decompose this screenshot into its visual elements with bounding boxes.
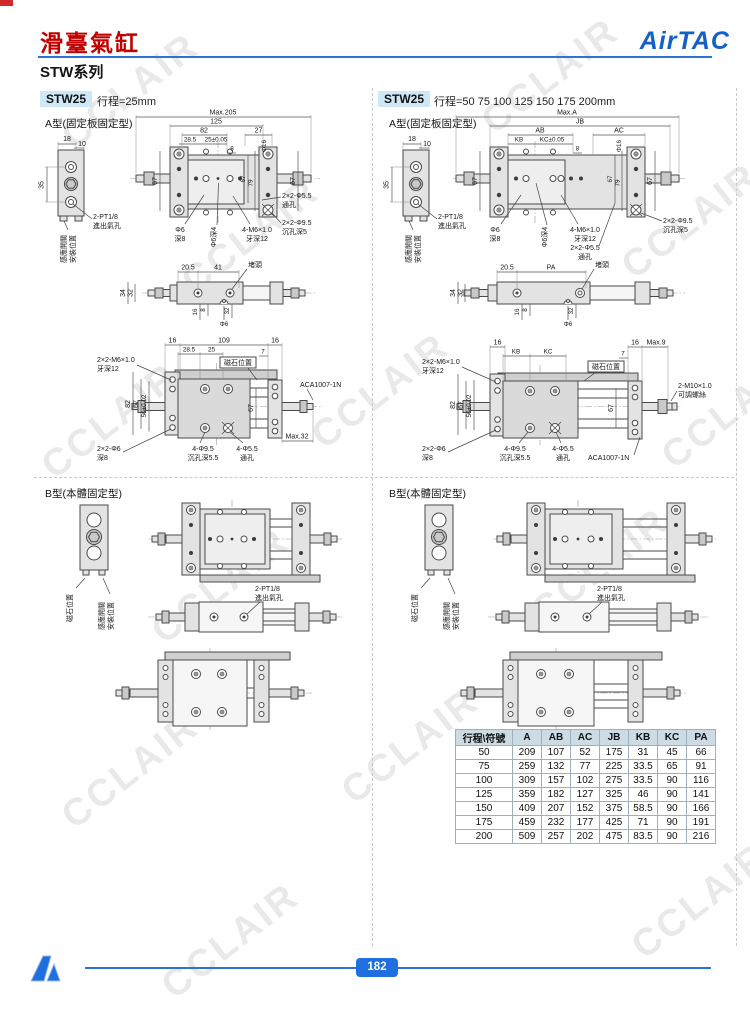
dim: 8 (230, 146, 234, 153)
dim: Φ16 (616, 139, 623, 152)
drawing-left-a-front-view: 20.5 41 堵頭 34 32 16 8 Φ6 32 (120, 256, 345, 340)
dim: Φ16 (261, 139, 268, 152)
drawing-right-a-front-view: 20.5 PA 堵頭 34 32 16 8 Φ6 32 (450, 256, 730, 340)
sensor-label: 安裝位置 (68, 235, 77, 263)
table-cell: 177 (571, 816, 600, 830)
dim: 50±0.02 (141, 394, 148, 417)
dim: 32 (568, 307, 575, 315)
feature-label: 4-Φ5.5 (552, 446, 574, 453)
port-label: 2-PT1/8 (438, 214, 463, 221)
feature-label: 2×2-Φ6 (422, 446, 446, 453)
dim: 25±0.05 (205, 137, 228, 144)
top-view: Max.205 125 82 27 28.5 25±0.05 8 Φ16 67 … (130, 110, 320, 248)
feature-label: 沉孔深5.5 (500, 453, 531, 462)
dim: AC (614, 128, 624, 135)
top-view (148, 500, 342, 582)
column-header: 行程\符號 (456, 730, 513, 746)
table-cell: 90 (658, 802, 687, 816)
table-cell: 207 (542, 802, 571, 816)
feature-label: 2×2-Φ5.5 (570, 245, 600, 252)
table-cell: 90 (658, 830, 687, 844)
dim: 67 (458, 401, 465, 409)
dim: 67 (133, 400, 140, 408)
dim: 82 (125, 400, 132, 408)
table-cell: 141 (687, 788, 716, 802)
dim: 16 (192, 308, 199, 316)
table-cell: 33.5 (629, 774, 658, 788)
feature-label: 堵頭 (248, 260, 262, 269)
feature-label: 沉孔深5 (282, 227, 307, 236)
dim: 67 (240, 175, 247, 183)
table-header-row: 行程\符號AABACJBKBKCPA (456, 730, 716, 746)
table-cell: 91 (687, 760, 716, 774)
table-cell: 359 (513, 788, 542, 802)
sensor-label: 安裝位置 (106, 602, 115, 630)
table-cell: 259 (513, 760, 542, 774)
front-view: 2-PT1/8 進出氣孔 (488, 586, 710, 632)
feature-label: 2×2-Φ9.5 (282, 220, 312, 227)
header-rule (38, 56, 712, 58)
dim: AB (535, 128, 545, 135)
sensor-label: 感應開關 (442, 602, 451, 630)
table-row: 10030915710227533.590116 (456, 774, 716, 788)
feature-label: 沉孔深5 (663, 225, 688, 234)
port-label: 2-PT1/8 (597, 586, 622, 593)
watermark: CCLAIR (154, 875, 308, 1008)
drawing-left-b: 磁石位置 感應開關 安裝位置 (30, 492, 370, 740)
page-corner-mark (0, 0, 13, 6)
feature-label: 可調螺絲 (678, 390, 706, 399)
dim: 8 (522, 308, 529, 312)
table-cell: 225 (600, 760, 629, 774)
dim: 32 (224, 307, 231, 315)
dim: PA (547, 265, 556, 272)
dim: Max.9 (646, 340, 665, 347)
table-cell: 50 (456, 746, 513, 760)
dim: 35 (384, 181, 391, 189)
table-cell: 209 (513, 746, 542, 760)
dim: 109 (218, 338, 230, 345)
feature-label: ACA1007-1N (300, 382, 341, 389)
table-cell: 459 (513, 816, 542, 830)
feature-label: 通孔 (240, 453, 254, 462)
table-cell: 107 (542, 746, 571, 760)
dim: 16 (494, 340, 502, 347)
column-header: AB (542, 730, 571, 746)
sensor-label: 感應開關 (404, 235, 413, 263)
dim: 41 (214, 265, 222, 272)
side-view: 磁石位置 感應開關 安裝位置 (410, 505, 460, 630)
dim: 20.5 (500, 265, 514, 272)
feature-label: 深8 (490, 234, 501, 243)
drawing-left-a-bottom-view: 16 109 16 28.5 25 7 磁石位置 2×2-M6×1.0 牙深12… (95, 331, 365, 473)
table-cell: 216 (687, 830, 716, 844)
feature-label: 4-Φ5.5 (236, 446, 258, 453)
dim: Φ6 (220, 321, 229, 328)
magnet-label: 磁石位置 (224, 358, 252, 367)
table-cell: 166 (687, 802, 716, 816)
dim: 32 (458, 289, 465, 297)
feature-label: 深8 (422, 453, 433, 462)
feature-label: 深8 (175, 234, 186, 243)
dim: 34 (120, 289, 127, 297)
dim: 67 (290, 177, 297, 185)
port-label: 進出氣孔 (93, 221, 121, 230)
table-cell: 58.5 (629, 802, 658, 816)
dim: 32 (128, 289, 135, 297)
table-cell: 100 (456, 774, 513, 788)
port-label: 進出氣孔 (597, 593, 625, 602)
column-header: AC (571, 730, 600, 746)
dim: 18 (408, 136, 416, 143)
table-cell: 90 (658, 774, 687, 788)
bottom-view (461, 648, 687, 732)
table-cell: 31 (629, 746, 658, 760)
table-cell: 157 (542, 774, 571, 788)
feature-label: 4-Φ9.5 (192, 446, 214, 453)
dim: 16 (169, 338, 177, 345)
dim: 16 (631, 340, 639, 347)
table-row: 15040920715237558.590166 (456, 802, 716, 816)
dim: 82 (200, 128, 208, 135)
dim: KC (544, 349, 553, 356)
table-cell: 409 (513, 802, 542, 816)
table-cell: 182 (542, 788, 571, 802)
dim: KB (512, 349, 520, 356)
section-divider (34, 477, 734, 478)
table-cell: 52 (571, 746, 600, 760)
feature-label: Φ6深4 (209, 227, 218, 247)
feature-label: 2×2-Φ6 (97, 446, 121, 453)
bottom-view (116, 648, 312, 732)
table-cell: 309 (513, 774, 542, 788)
feature-label: 2×2-Φ9.5 (663, 218, 693, 225)
table-cell: 257 (542, 830, 571, 844)
column-divider (372, 88, 373, 946)
front-view: 2-PT1/8 進出氣孔 (148, 586, 342, 632)
dim: 67 (607, 175, 614, 183)
dim: Φ6 (564, 321, 573, 328)
table-cell: 102 (571, 774, 600, 788)
magnet-label: 磁石位置 (65, 594, 74, 622)
column-header: A (513, 730, 542, 746)
table-cell: 90 (658, 788, 687, 802)
dim: 67 (608, 404, 615, 412)
dim: 28.5 (184, 137, 197, 144)
feature-label: Φ6深4 (540, 227, 549, 247)
dim: 34 (450, 289, 457, 297)
dim: 79 (248, 179, 255, 187)
table-row: 20050925720247583.590216 (456, 830, 716, 844)
side-view: 18 10 35 2-PT1/8 進出氣孔 感應開關 安裝位置 (39, 136, 122, 263)
dim: 82 (450, 401, 457, 409)
feature-label: 4-Φ9.5 (504, 446, 526, 453)
table-cell: 46 (629, 788, 658, 802)
dim: 10 (423, 141, 431, 148)
dim: 67 (647, 177, 654, 185)
dim: 67 (248, 404, 255, 412)
dim: 50±0.02 (466, 394, 473, 417)
dim: KB (515, 137, 523, 144)
table-row: 1754592321774257190191 (456, 816, 716, 830)
dim: 8 (576, 146, 580, 153)
feature-label: 2×2-Φ5.5 (282, 193, 312, 200)
feature-label: 通孔 (556, 453, 570, 462)
table-row: 752591327722533.56591 (456, 760, 716, 774)
page-title: 滑臺氣缸 (40, 24, 140, 58)
table-cell: 175 (600, 746, 629, 760)
table-cell: 65 (658, 760, 687, 774)
dim: 10 (78, 141, 86, 148)
table-cell: 375 (600, 802, 629, 816)
table-cell: 200 (456, 830, 513, 844)
dim: 28.5 (183, 347, 196, 354)
dim: 7 (621, 351, 625, 358)
feature-label: 牙深12 (246, 234, 268, 243)
sensor-label: 感應開關 (97, 602, 106, 630)
airtac-logo-mark (28, 952, 64, 984)
table-cell: 83.5 (629, 830, 658, 844)
feature-label: 深8 (97, 453, 108, 462)
feature-label: 通孔 (282, 200, 296, 209)
feature-label: 堵頭 (595, 260, 609, 269)
dim: 25 (208, 347, 216, 354)
drawing-right-b: 磁石位置 感應開關 安裝位置 (375, 492, 725, 740)
dim: 67 (472, 177, 479, 185)
column-header: PA (687, 730, 716, 746)
sensor-label: 安裝位置 (451, 602, 460, 630)
table-cell: 150 (456, 802, 513, 816)
table-cell: 509 (513, 830, 542, 844)
sensor-label: 感應開關 (59, 235, 68, 263)
dim: 79 (615, 179, 622, 187)
table-cell: 325 (600, 788, 629, 802)
table-row: 1253591821273254690141 (456, 788, 716, 802)
dim: 27 (255, 128, 263, 135)
table-cell: 45 (658, 746, 687, 760)
dim: KC±0.05 (540, 137, 565, 144)
series-title: STW系列 (40, 61, 103, 82)
table-cell: 125 (456, 788, 513, 802)
port-label: 進出氣孔 (438, 221, 466, 230)
top-view: Max.A JB AB AC KB KC±0.05 8 Φ16 67 67 79… (453, 110, 693, 262)
table-cell: 127 (571, 788, 600, 802)
feature-label: 2-M10×1.0 (678, 383, 712, 390)
table-cell: 152 (571, 802, 600, 816)
drawing-left-a-top-view: 18 10 35 2-PT1/8 進出氣孔 感應開關 安裝位置 (30, 103, 370, 275)
airtac-logo: AirTAC (596, 27, 730, 56)
feature-label: Φ6 (175, 227, 185, 234)
table-cell: 71 (629, 816, 658, 830)
dim: 125 (210, 119, 222, 126)
stroke-spec-table: 行程\符號AABACJBKBKCPA5020910752175314566752… (455, 729, 716, 844)
magnet-label: 磁石位置 (592, 362, 620, 371)
feature-label: 4-M6×1.0 (242, 227, 272, 234)
table-cell: 275 (600, 774, 629, 788)
dim: Max.32 (286, 434, 309, 441)
dim: 16 (271, 338, 279, 345)
dim: 8 (200, 308, 207, 312)
feature-label: 沉孔深5.5 (188, 453, 219, 462)
page-number: 182 (356, 958, 398, 977)
table-cell: 66 (687, 746, 716, 760)
dim: 18 (63, 136, 71, 143)
table-cell: 75 (456, 760, 513, 774)
port-label: 2-PT1/8 (255, 586, 280, 593)
catalog-page: CCLAIR CCLAIR CCLAIR CCLAIR CCLAIR CCLAI… (0, 0, 750, 1018)
footer-rule (85, 967, 711, 969)
feature-label: 牙深12 (574, 234, 596, 243)
side-view: 18 10 35 2-PT1/8 進出氣孔 感應開關 安裝位置 (384, 136, 467, 263)
feature-label: 牙深12 (422, 366, 444, 375)
dim: JB (576, 119, 585, 126)
drawing-right-a-bottom-view: 16 KB KC 7 16 Max.9 磁石位置 2×2-M6×1.0 牙深12… (420, 331, 732, 473)
sensor-label: 安裝位置 (413, 235, 422, 263)
dim: 67 (152, 177, 159, 185)
table-cell: 116 (687, 774, 716, 788)
port-label: 進出氣孔 (255, 593, 283, 602)
table-cell: 232 (542, 816, 571, 830)
dim: Max.A (557, 110, 577, 117)
column-header: KB (629, 730, 658, 746)
stroke-spec-table-container: 行程\符號AABACJBKBKCPA5020910752175314566752… (455, 729, 716, 844)
table-cell: 90 (658, 816, 687, 830)
table-cell: 202 (571, 830, 600, 844)
table-row: 5020910752175314566 (456, 746, 716, 760)
dim: 35 (39, 181, 46, 189)
feature-label: 4-M6×1.0 (570, 227, 600, 234)
table-cell: 175 (456, 816, 513, 830)
side-view: 磁石位置 感應開關 安裝位置 (65, 505, 115, 630)
drawing-right-a-top-view: 18 10 35 2-PT1/8 進出氣孔 感應開關 安裝位置 (375, 103, 740, 275)
feature-label: Φ6 (490, 227, 500, 234)
port-label: 2-PT1/8 (93, 214, 118, 221)
dim: 20.5 (181, 265, 195, 272)
magnet-label: 磁石位置 (410, 594, 419, 622)
dim: 16 (514, 308, 521, 316)
feature-label: 2×2-M6×1.0 (422, 359, 460, 366)
table-cell: 475 (600, 830, 629, 844)
table-cell: 191 (687, 816, 716, 830)
dim: 7 (261, 349, 265, 356)
feature-label: ACA1007-1N (588, 455, 629, 462)
feature-label: 2×2-M6×1.0 (97, 357, 135, 364)
table-cell: 77 (571, 760, 600, 774)
feature-label: 牙深12 (97, 364, 119, 373)
table-cell: 132 (542, 760, 571, 774)
watermark: CCLAIR (624, 835, 750, 968)
table-cell: 425 (600, 816, 629, 830)
top-view (493, 500, 717, 582)
table-cell: 33.5 (629, 760, 658, 774)
column-header: JB (600, 730, 629, 746)
dim: Max.205 (210, 110, 237, 117)
column-header: KC (658, 730, 687, 746)
